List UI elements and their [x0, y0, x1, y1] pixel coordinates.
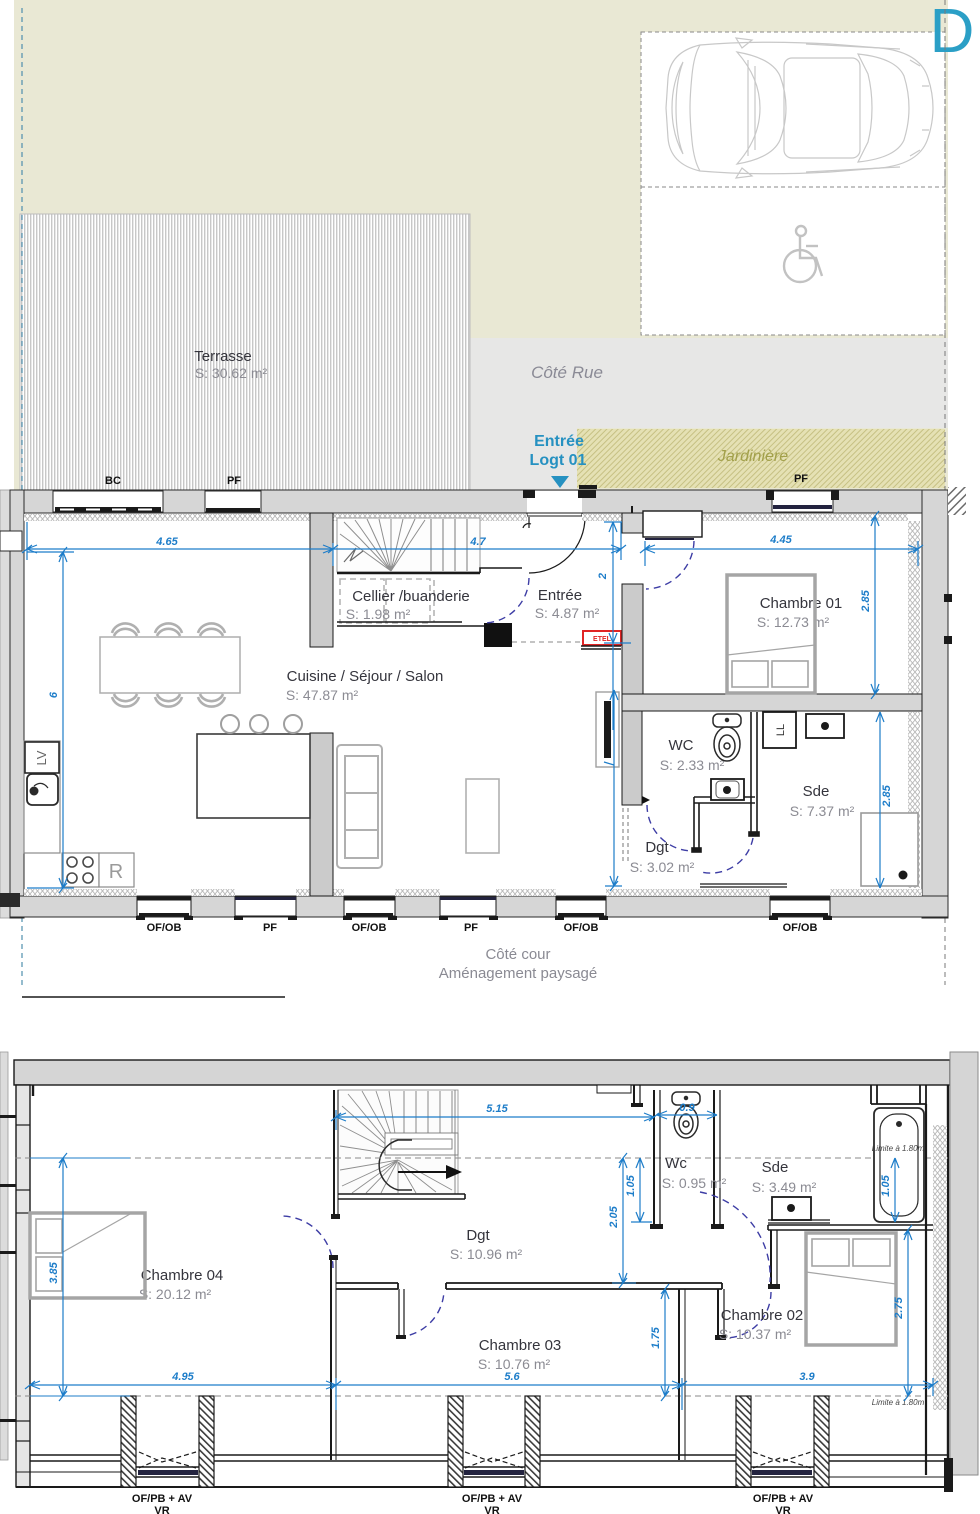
- svg-text:VR: VR: [154, 1505, 169, 1514]
- svg-text:4.65: 4.65: [155, 536, 178, 548]
- svg-text:4.7: 4.7: [469, 536, 486, 548]
- svg-text:Entrée: Entrée: [538, 587, 582, 604]
- svg-text:WC: WC: [669, 737, 694, 754]
- svg-text:Sde: Sde: [762, 1159, 789, 1176]
- svg-text:OF/PB + AV: OF/PB + AV: [132, 1493, 193, 1505]
- svg-text:S: 10.37 m²: S: 10.37 m²: [719, 1326, 792, 1342]
- svg-text:OF/PB + AV: OF/PB + AV: [753, 1493, 814, 1505]
- svg-text:ETEL: ETEL: [593, 636, 612, 643]
- svg-text:Terrasse: Terrasse: [194, 348, 252, 365]
- svg-text:BC: BC: [105, 475, 121, 487]
- svg-text:D: D: [930, 0, 975, 66]
- svg-text:4.95: 4.95: [171, 1371, 194, 1383]
- svg-text:5.6: 5.6: [504, 1371, 520, 1383]
- svg-text:Chambre 01: Chambre 01: [760, 595, 843, 612]
- svg-text:LV: LV: [34, 750, 49, 765]
- svg-text:2.85: 2.85: [860, 589, 872, 612]
- svg-text:S: 1.98 m²: S: 1.98 m²: [346, 606, 411, 622]
- svg-text:2.05: 2.05: [608, 1205, 620, 1228]
- svg-text:Chambre 03: Chambre 03: [479, 1337, 562, 1354]
- svg-text:S: 3.49 m²: S: 3.49 m²: [752, 1179, 817, 1195]
- svg-text:2.85: 2.85: [881, 784, 893, 807]
- svg-text:Entrée: Entrée: [534, 433, 584, 450]
- svg-text:S: 4.87 m²: S: 4.87 m²: [535, 605, 600, 621]
- svg-text:1.05: 1.05: [625, 1174, 637, 1196]
- svg-text:PF: PF: [263, 922, 277, 934]
- svg-text:OF/OB: OF/OB: [783, 922, 818, 934]
- svg-text:LL: LL: [775, 724, 787, 736]
- svg-text:S: 47.87 m²: S: 47.87 m²: [286, 687, 359, 703]
- svg-text:Dgt: Dgt: [466, 1227, 490, 1244]
- svg-text:2: 2: [597, 573, 609, 580]
- svg-text:Limite à 1.80m: Limite à 1.80m: [872, 1144, 925, 1153]
- svg-text:VR: VR: [484, 1505, 499, 1514]
- svg-text:PF: PF: [227, 475, 241, 487]
- svg-text:4.45: 4.45: [769, 534, 792, 546]
- svg-text:5.15: 5.15: [486, 1103, 508, 1115]
- svg-text:Chambre 04: Chambre 04: [141, 1267, 224, 1284]
- svg-text:Logt 01: Logt 01: [530, 452, 587, 469]
- svg-text:OF/PB + AV: OF/PB + AV: [462, 1493, 523, 1505]
- svg-text:2.75: 2.75: [893, 1296, 905, 1319]
- svg-text:Côté Rue: Côté Rue: [531, 363, 603, 382]
- svg-text:R: R: [109, 861, 123, 883]
- svg-text:OF/OB: OF/OB: [564, 922, 599, 934]
- svg-text:S: 10.76 m²: S: 10.76 m²: [478, 1356, 551, 1372]
- svg-text:VR: VR: [775, 1505, 790, 1514]
- svg-text:PF: PF: [794, 473, 808, 485]
- svg-text:Sde: Sde: [803, 783, 830, 800]
- svg-text:S: 7.37 m²: S: 7.37 m²: [790, 803, 855, 819]
- svg-text:Cuisine / Séjour / Salon: Cuisine / Séjour / Salon: [287, 668, 444, 685]
- svg-text:Wc: Wc: [665, 1155, 687, 1172]
- svg-text:S: 3.02 m²: S: 3.02 m²: [630, 859, 695, 875]
- svg-text:S: 10.96 m²: S: 10.96 m²: [450, 1246, 523, 1262]
- svg-text:Côté cour: Côté cour: [485, 946, 550, 963]
- svg-text:Limite à 1.80m: Limite à 1.80m: [872, 1398, 925, 1407]
- svg-text:PF: PF: [464, 922, 478, 934]
- svg-text:Chambre 02: Chambre 02: [721, 1307, 804, 1324]
- svg-text:0.9: 0.9: [679, 1102, 695, 1114]
- svg-text:Jardinière: Jardinière: [717, 448, 788, 465]
- svg-text:S: 2.33 m²: S: 2.33 m²: [660, 757, 725, 773]
- svg-text:Cellier /buanderie: Cellier /buanderie: [352, 588, 470, 605]
- svg-text:3.9: 3.9: [799, 1371, 815, 1383]
- svg-text:S: 0.95 m²: S: 0.95 m²: [662, 1175, 727, 1191]
- svg-text:S: 20.12 m²: S: 20.12 m²: [139, 1286, 212, 1302]
- svg-text:1.05: 1.05: [880, 1174, 892, 1196]
- svg-text:Aménagement paysagé: Aménagement paysagé: [439, 965, 597, 982]
- svg-text:S: 30.62 m²: S: 30.62 m²: [195, 365, 268, 381]
- svg-text:6: 6: [48, 691, 60, 698]
- svg-text:OF/OB: OF/OB: [147, 922, 182, 934]
- svg-text:OF/OB: OF/OB: [352, 922, 387, 934]
- svg-text:S: 12.73 m²: S: 12.73 m²: [757, 614, 830, 630]
- svg-text:3.85: 3.85: [48, 1261, 60, 1283]
- svg-text:1.75: 1.75: [650, 1326, 662, 1348]
